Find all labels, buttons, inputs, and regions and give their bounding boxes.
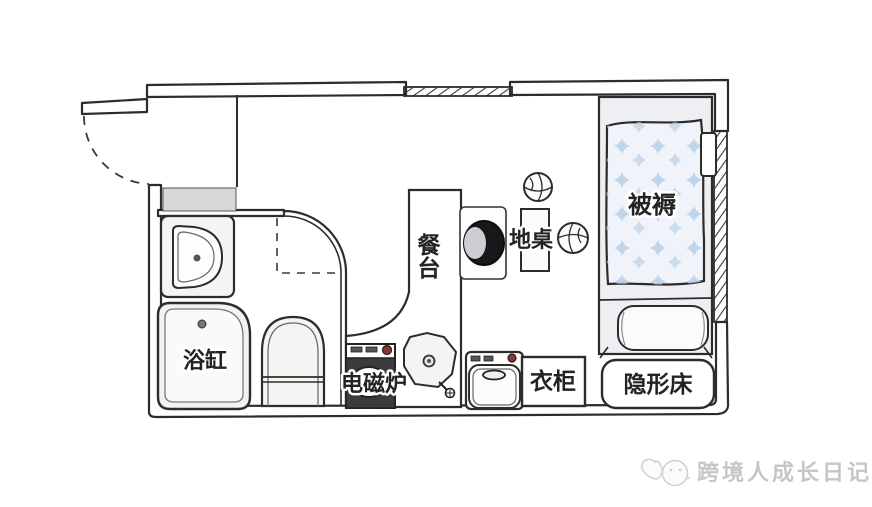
washer-knob-red <box>508 354 516 362</box>
watermark-chick-icon <box>642 459 691 485</box>
chick-eye-right <box>679 469 682 472</box>
bathroom: 浴缸 <box>158 211 346 409</box>
wardrobe-label: 衣柜 <box>530 368 576 394</box>
entry-stub-wall <box>82 99 147 114</box>
chick-beak <box>686 476 691 480</box>
bed-area: 被褥 <box>599 97 716 358</box>
kitchen-sink-drain-dot <box>427 359 431 363</box>
chick-wing <box>642 459 663 479</box>
floor-cushion-1 <box>524 173 552 201</box>
cushion-2-outline <box>558 223 588 253</box>
window-handle-frame <box>701 133 716 176</box>
cushion-1-outline <box>524 173 552 201</box>
floor-table-label: 地桌 <box>509 227 554 252</box>
chick-head <box>663 461 688 486</box>
chair-seat <box>464 227 486 259</box>
bathtub-label: 浴缸 <box>183 348 227 373</box>
cooker-control-1 <box>351 347 362 352</box>
cooker-knob-red <box>383 346 392 355</box>
bathroom-door-arc-inner <box>284 216 341 275</box>
watermark-brand-text: 跨境人成长日记 <box>697 460 872 485</box>
chick-eye-left <box>670 469 673 472</box>
washer-control-1 <box>471 356 480 361</box>
living-area: 地桌 <box>460 173 588 279</box>
washbasin-drain <box>194 255 201 262</box>
bathroom-door-arc-outer <box>284 211 346 275</box>
entry-step <box>163 188 236 211</box>
bathroom-door-open-position <box>277 218 337 273</box>
washer-lid-handle <box>483 371 505 380</box>
toilet <box>262 317 324 406</box>
induction-cooker-label: 电磁炉 <box>341 371 407 396</box>
washer-control-2 <box>484 356 493 361</box>
entry-door-swing-arc <box>84 116 149 184</box>
hidden-bed-label: 隐形床 <box>624 371 693 397</box>
pillow <box>618 306 708 350</box>
bathtub-drain <box>198 320 206 328</box>
top-wall-left <box>147 82 406 97</box>
bedding-label: 被褥 <box>628 191 677 219</box>
floor-plan-canvas: 被褥 浴缸 餐台 <box>0 0 872 507</box>
watermark: 跨境人成长日记 <box>642 459 872 485</box>
cooker-control-2 <box>366 347 377 352</box>
dining-counter-label: 餐台 <box>414 233 441 279</box>
top-window <box>404 87 512 96</box>
floor-cushion-2 <box>558 223 588 253</box>
laundry-and-storage: 衣柜 隐形床 <box>466 352 714 409</box>
floor-plan-drawing: 被褥 浴缸 餐台 <box>0 0 872 507</box>
kitchen: 餐台 电磁炉 <box>341 190 461 408</box>
washing-machine <box>466 352 523 409</box>
